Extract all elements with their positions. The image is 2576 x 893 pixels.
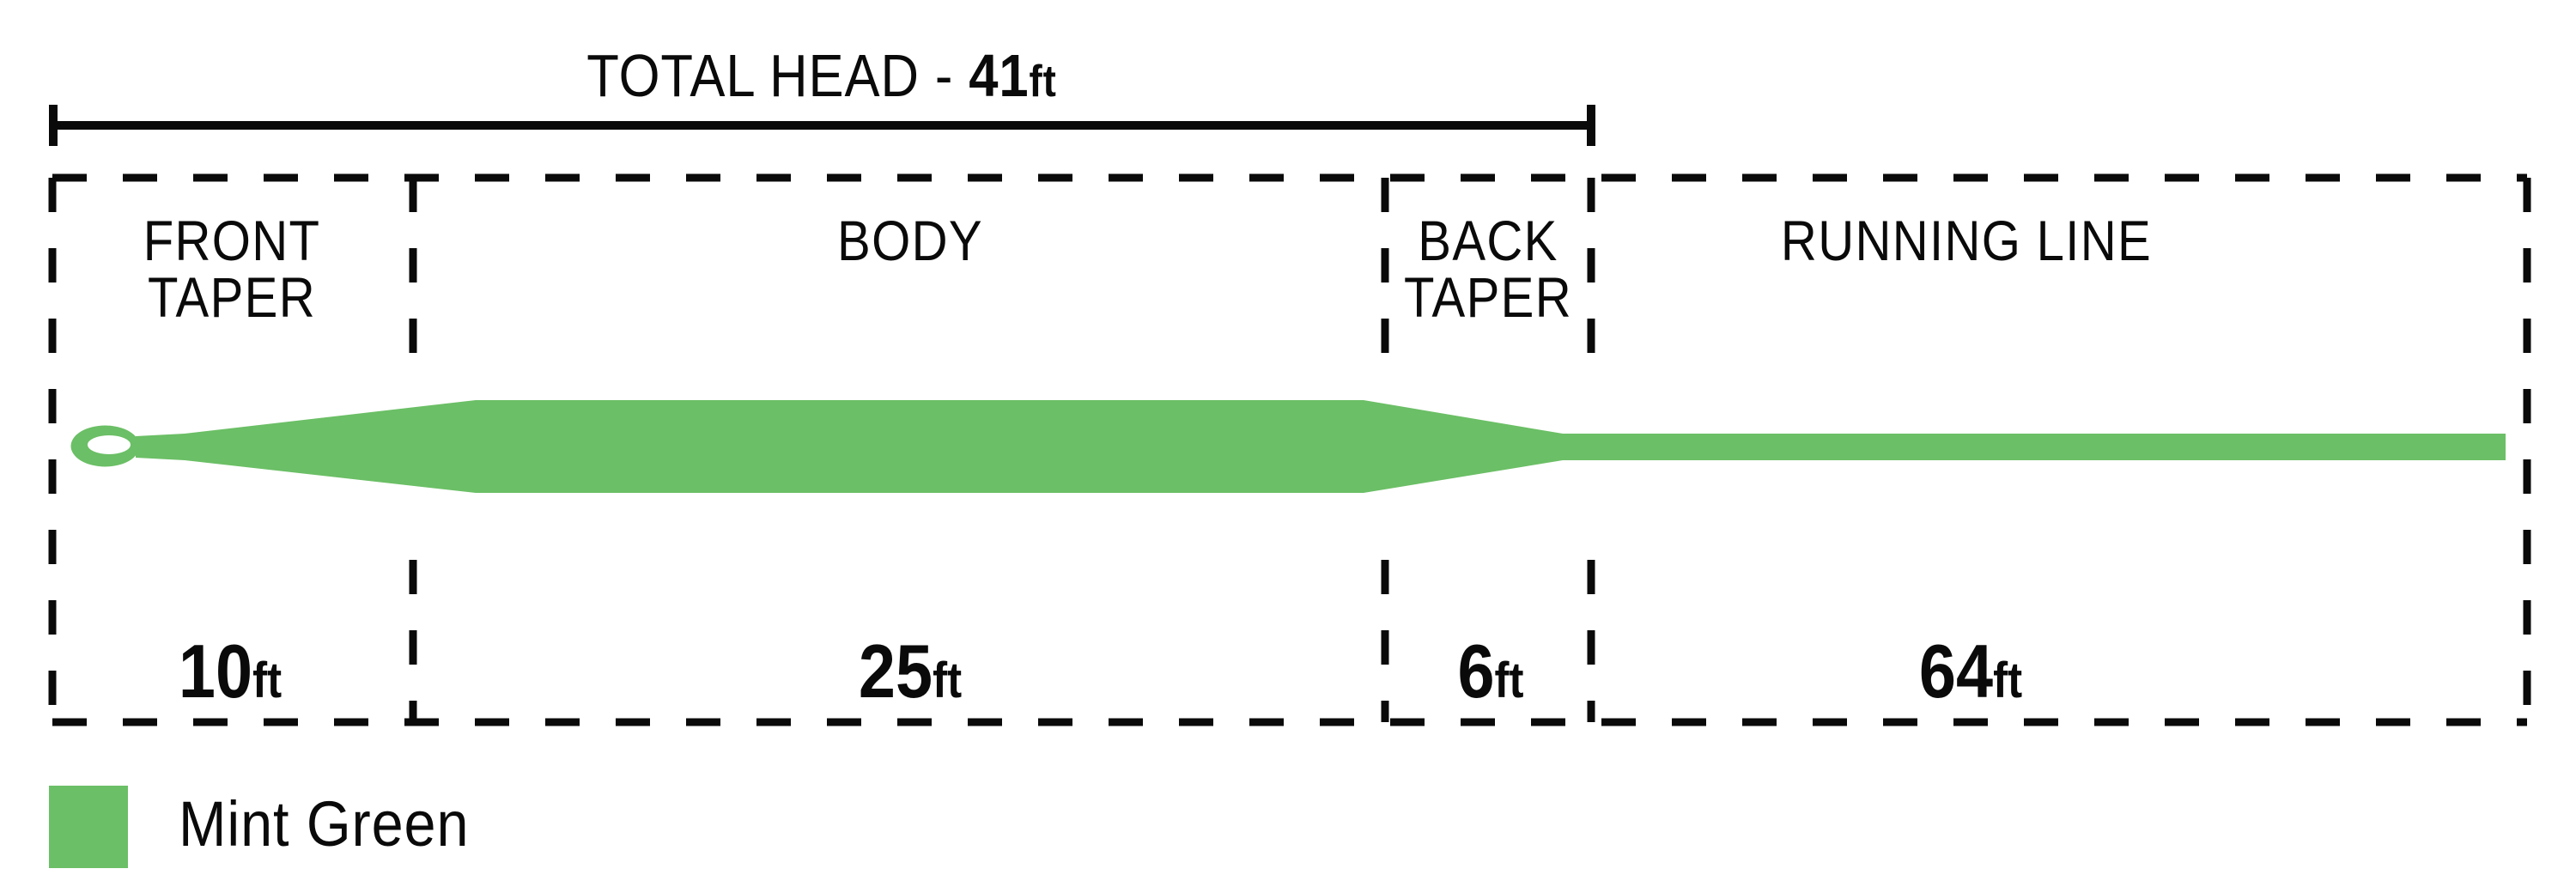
front-taper-length: 10 [179, 629, 252, 714]
section-label-body: BODY [837, 212, 983, 269]
front-taper-line2: TAPER [143, 269, 321, 325]
fly-line-taper-diagram: TOTAL HEAD - 41ft FRONT TAPE [0, 0, 2576, 893]
back-taper-line2: TAPER [1404, 269, 1572, 325]
line-profile-shape [136, 400, 2506, 493]
back-taper-length: 6 [1457, 629, 1494, 714]
back-taper-length-unit: ft [1495, 653, 1524, 708]
welded-loop-hole [88, 435, 131, 454]
line-profile [71, 400, 2506, 493]
section-label-running-line: RUNNING LINE [1781, 212, 2152, 269]
measurement-front-taper: 10ft [179, 632, 282, 720]
body-length: 25 [859, 629, 933, 714]
legend-color-label: Mint Green [179, 790, 469, 859]
measurement-body: 25ft [859, 632, 962, 720]
body-line1: BODY [837, 212, 983, 269]
diagram-graphics [0, 0, 2576, 893]
body-length-unit: ft [933, 653, 962, 708]
front-taper-line1: FRONT [143, 212, 321, 269]
section-label-back-taper: BACK TAPER [1404, 212, 1572, 325]
legend-color-swatch [49, 786, 128, 868]
measurement-running-line: 64ft [1919, 632, 2022, 720]
running-line-length: 64 [1919, 629, 1993, 714]
back-taper-line1: BACK [1404, 212, 1572, 269]
section-label-front-taper: FRONT TAPER [143, 212, 321, 325]
running-line-line1: RUNNING LINE [1781, 212, 2152, 269]
running-line-length-unit: ft [1993, 653, 2022, 708]
front-taper-length-unit: ft [252, 653, 282, 708]
measurement-back-taper: 6ft [1457, 632, 1523, 720]
